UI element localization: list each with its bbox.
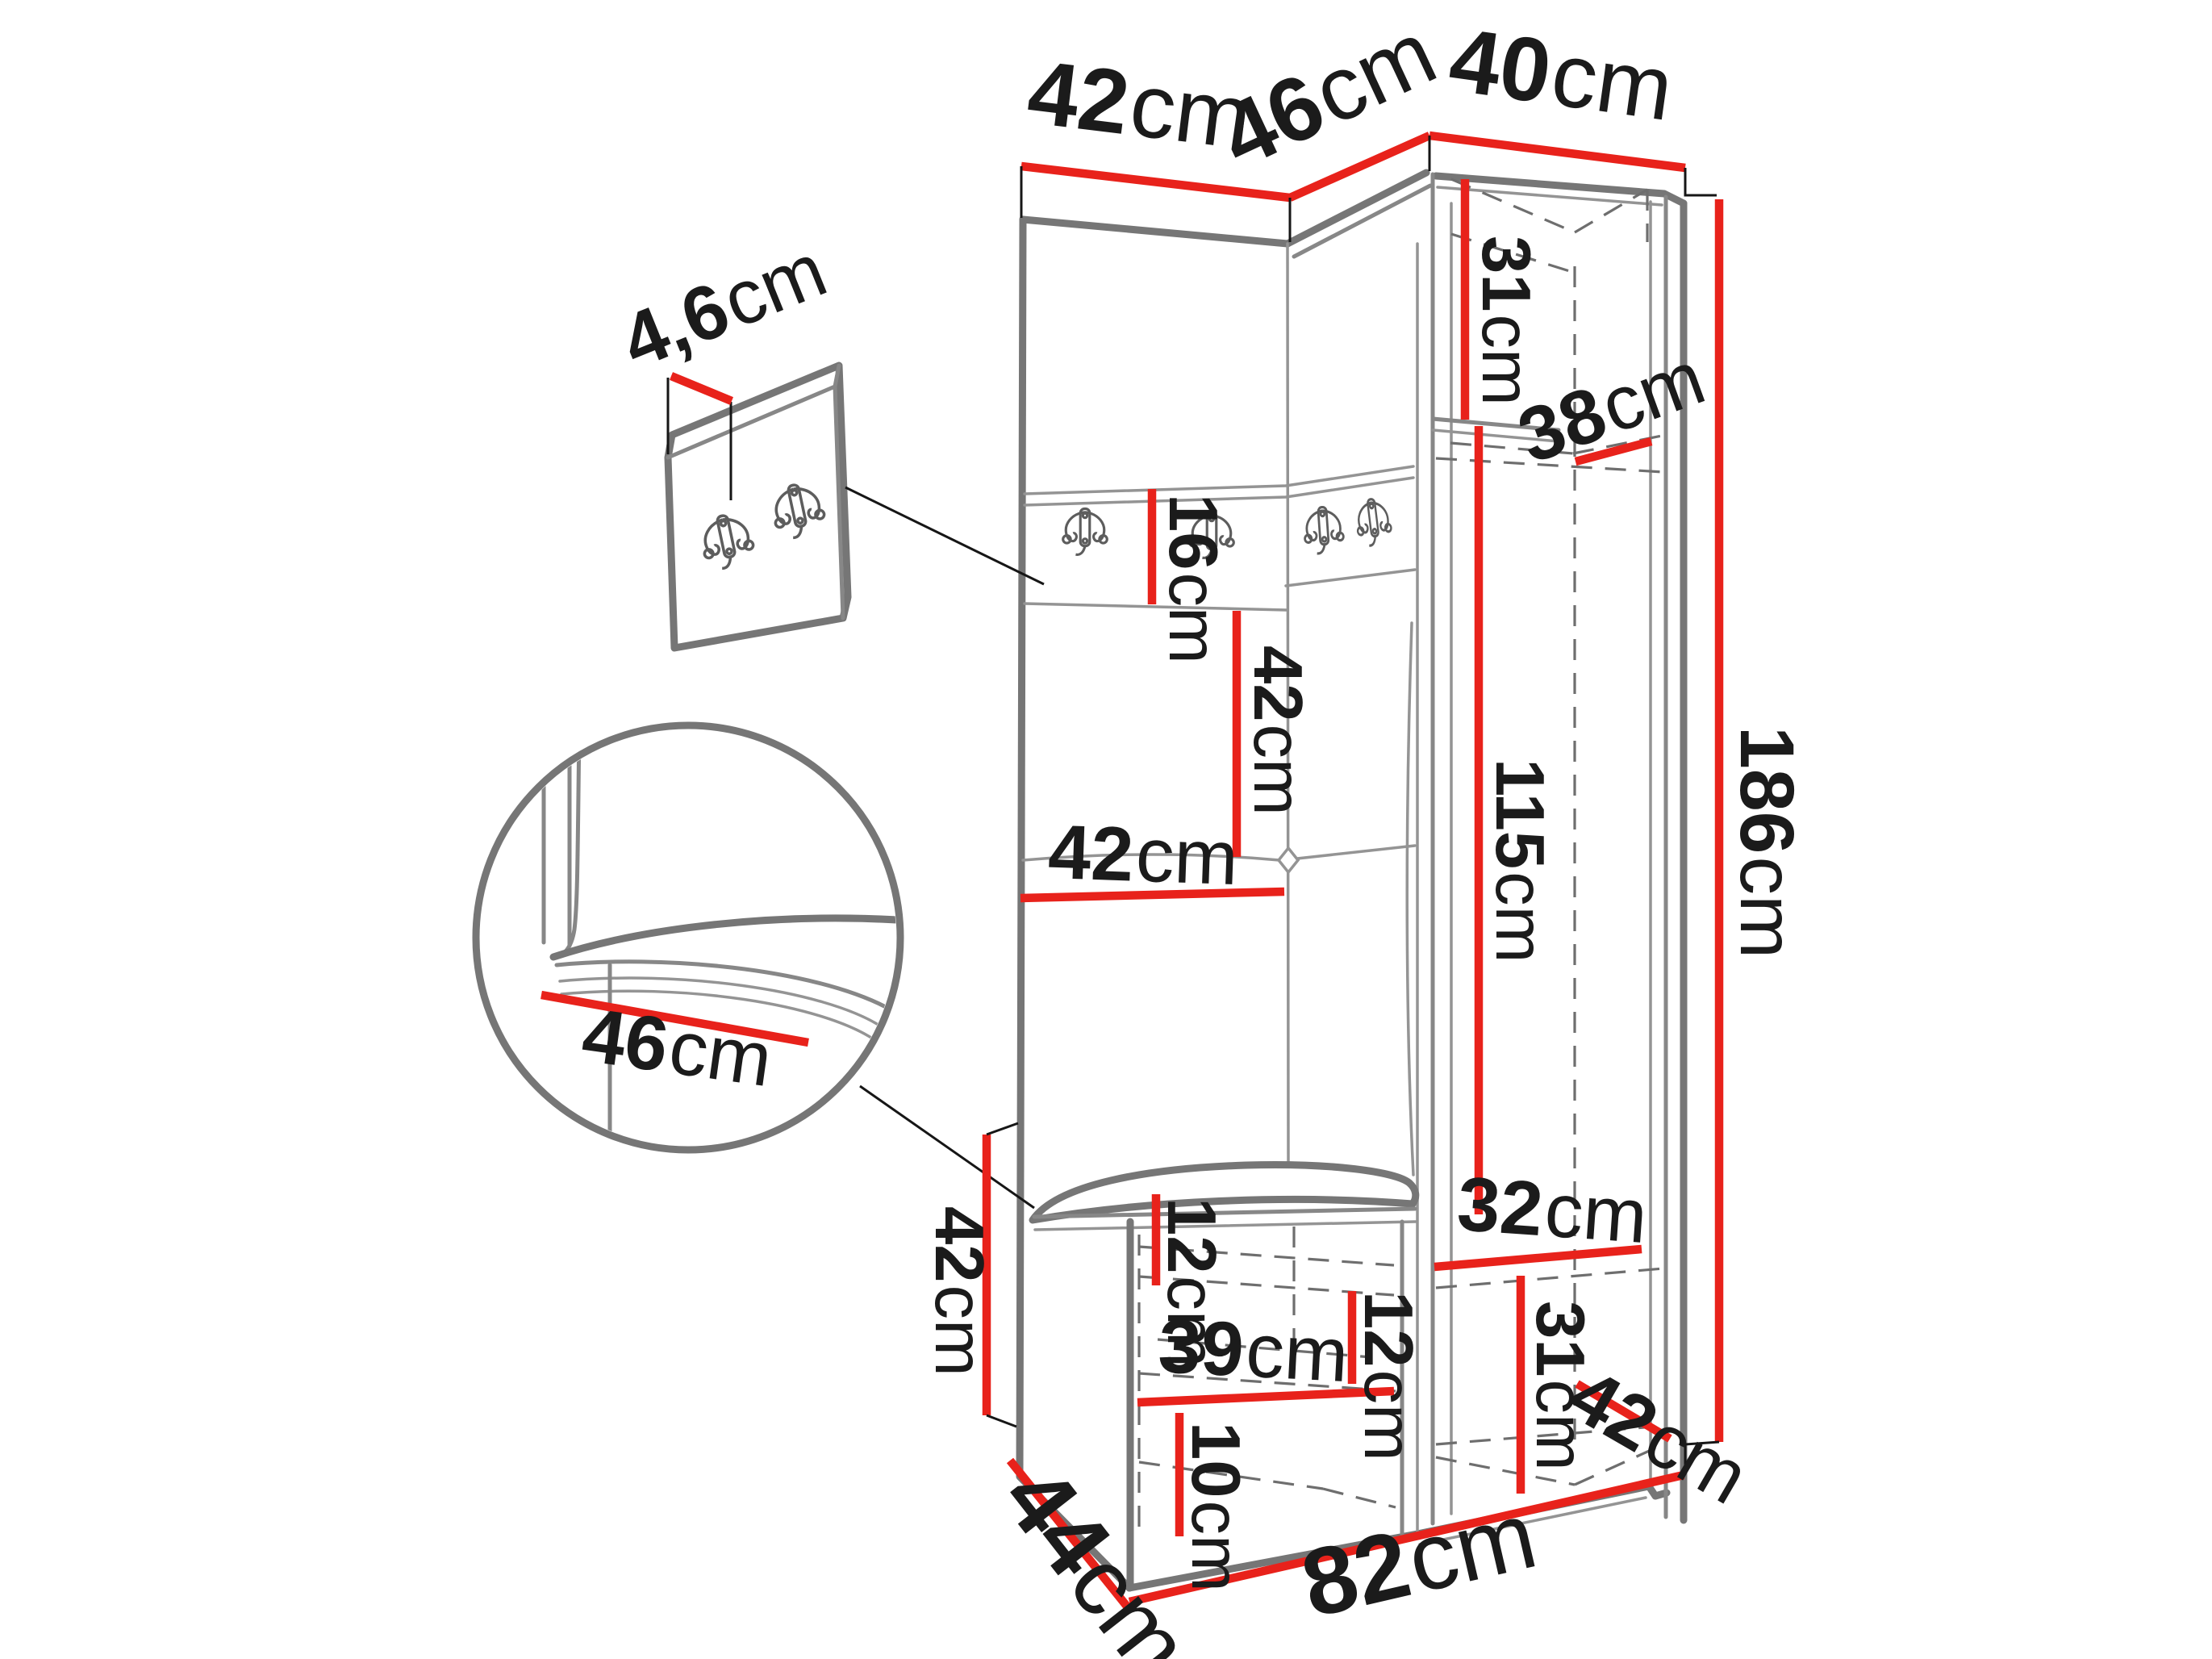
dim-label-bench-height: 42cm	[920, 1206, 997, 1377]
hook-panel-slab	[668, 366, 848, 648]
dim-label-bench-bottom-clearance: 10cm	[1177, 1422, 1254, 1592]
dim-label-back-panel-width: 42cm	[1047, 809, 1240, 901]
cabinet-top-hidden-3	[1575, 190, 1647, 232]
ext-bench-top	[987, 1123, 1018, 1135]
dim-line-hook-panel-thickness	[671, 376, 732, 401]
upholstery-right-piping	[1407, 623, 1413, 1175]
diagram-canvas: 42cm 46cm 40cm 31cm 38cm 186cm 4,6cm 16c…	[0, 0, 2212, 1659]
dim-label-wardrobe-inner-height: 115cm	[1481, 758, 1558, 963]
coat-hook-icon	[1354, 497, 1393, 547]
dim-line-top-width-right	[1429, 136, 1685, 168]
angled-face-top-edge-inner	[1294, 186, 1430, 257]
ext-bench-bottom	[987, 1415, 1016, 1427]
coat-hook-icon	[1063, 509, 1108, 555]
ext-top-right	[1685, 168, 1717, 195]
dim-label-hook-panel-thickness: 4,6cm	[610, 227, 837, 385]
dim-label-lower-compartment-w: 32cm	[1454, 1161, 1650, 1260]
coat-hook-icon	[1303, 506, 1345, 554]
hook-panel-leader-line	[845, 487, 1044, 584]
angled-face-top-edge	[1288, 173, 1426, 244]
tufting-button-icon	[1279, 848, 1298, 872]
detail-leader-line	[860, 1086, 1034, 1208]
left-panel-top-edge	[1023, 219, 1288, 244]
dim-label-bench-inner-width: 39cm	[1156, 1303, 1350, 1398]
dim-label-top-width-middle: 46cm	[1205, 2, 1450, 187]
dim-label-total-height: 186cm	[1724, 726, 1809, 959]
dim-label-upper-compartment-h: 31cm	[1467, 236, 1544, 406]
dim-label-total-width: 82cm	[1292, 1481, 1546, 1638]
dim-label-bench-mid-clearance: 12cm	[1350, 1291, 1426, 1461]
dim-label-hook-strip-height: 16cm	[1154, 494, 1231, 664]
lower-compartment-hidden-top	[1436, 1268, 1663, 1288]
dim-label-top-width-right: 40cm	[1444, 9, 1680, 140]
dim-label-back-panel-height: 42cm	[1239, 646, 1316, 816]
left-panel-outer-edge	[1020, 219, 1129, 1588]
furniture-dimension-drawing: 42cm 46cm 40cm 31cm 38cm 186cm 4,6cm 16c…	[0, 0, 2212, 1659]
bench-corner-detail	[476, 725, 1034, 1208]
hook-panel-detail	[668, 366, 1044, 648]
